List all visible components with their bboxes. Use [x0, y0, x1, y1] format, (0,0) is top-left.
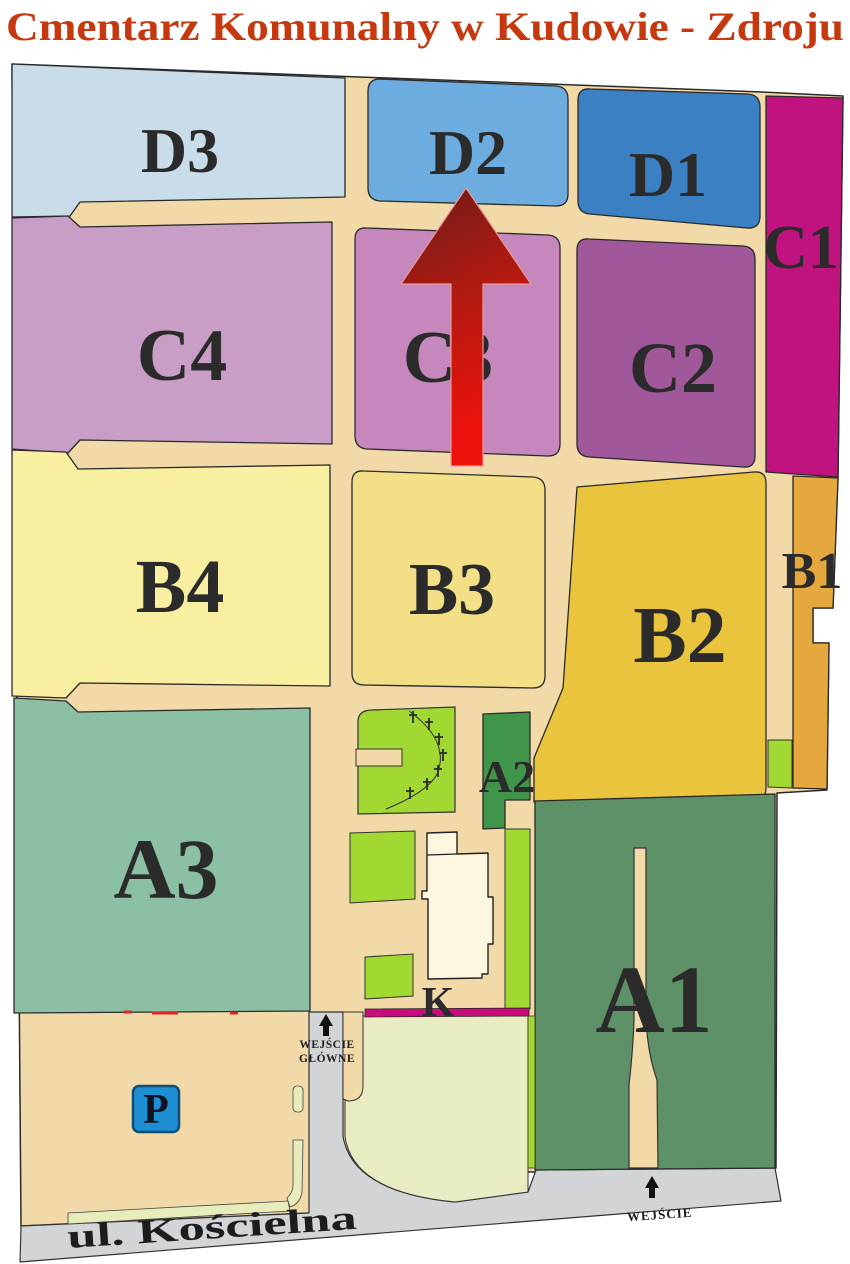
entrance-main-label-1: WEJŚCIE — [299, 1037, 354, 1051]
curb-strip — [293, 1086, 303, 1112]
section-B1 — [793, 476, 838, 789]
section-label-C4: C4 — [137, 315, 227, 397]
lime-sliver — [528, 1016, 535, 1168]
section-label-B4: B4 — [136, 545, 225, 629]
chapel-building — [422, 832, 493, 979]
section-label-A3: A3 — [113, 821, 218, 917]
section-label-B3: B3 — [409, 549, 495, 631]
cemetery-map: Cmentarz Komunalny w Kudowie - Zdroju — [0, 0, 850, 1264]
chapel-plaza — [345, 1016, 528, 1202]
entrance-main-label-2: GŁÓWNE — [299, 1051, 355, 1065]
section-label-C2: C2 — [629, 328, 717, 408]
cemetery-map-page: Cmentarz Komunalny w Kudowie - Zdroju — [0, 0, 850, 1264]
parking-sign-letter: P — [143, 1087, 169, 1133]
lime-strip — [505, 829, 530, 1009]
section-label-A1: A1 — [595, 946, 712, 1053]
section-label-B2: B2 — [633, 592, 726, 680]
section-label-B1: B1 — [782, 543, 843, 600]
section-label-D2: D2 — [429, 117, 507, 188]
section-label-C1: C1 — [763, 214, 839, 282]
lime-patch — [350, 831, 415, 903]
section-label-D3: D3 — [141, 115, 219, 186]
entrance-side-label: WEJŚCIE — [626, 1205, 692, 1225]
lime-patch — [365, 954, 413, 999]
chapel-label: K — [422, 980, 455, 1026]
lime-sliver — [768, 740, 792, 788]
section-label-D1: D1 — [629, 139, 707, 210]
map-title: Cmentarz Komunalny w Kudowie - Zdroju — [6, 4, 844, 49]
section-label-A2: A2 — [479, 751, 535, 802]
section-C1 — [766, 96, 843, 477]
path-notch — [356, 749, 402, 766]
